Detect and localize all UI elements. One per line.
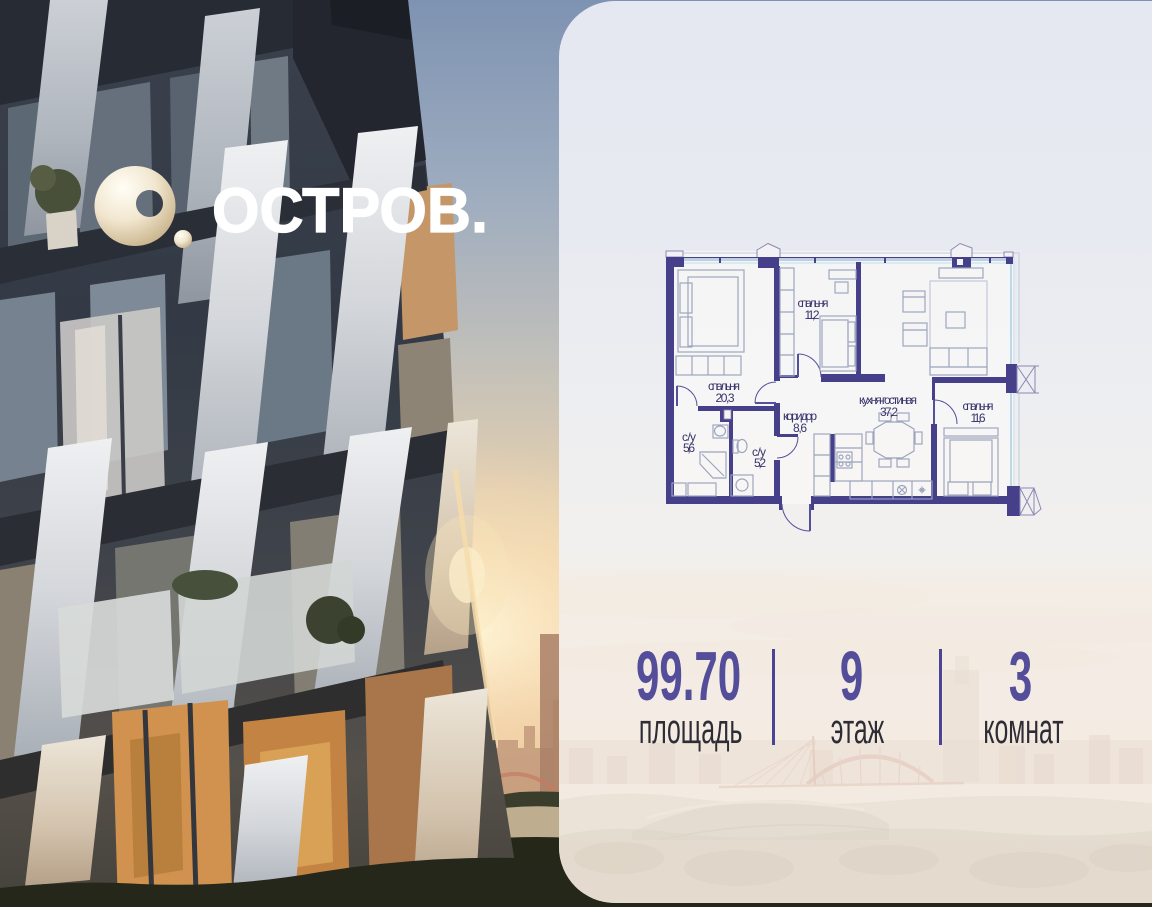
svg-text:ОСТРОВ.: ОСТРОВ. [212, 176, 488, 246]
svg-text:11,6: 11,6 [971, 411, 986, 425]
svg-text:8,6: 8,6 [793, 421, 807, 435]
svg-text:11,2: 11,2 [805, 308, 820, 322]
svg-text:20,3: 20,3 [716, 391, 735, 405]
svg-text:5,6: 5,6 [683, 441, 695, 455]
svg-text:5,2: 5,2 [754, 456, 766, 470]
svg-text:37,2: 37,2 [880, 405, 898, 419]
